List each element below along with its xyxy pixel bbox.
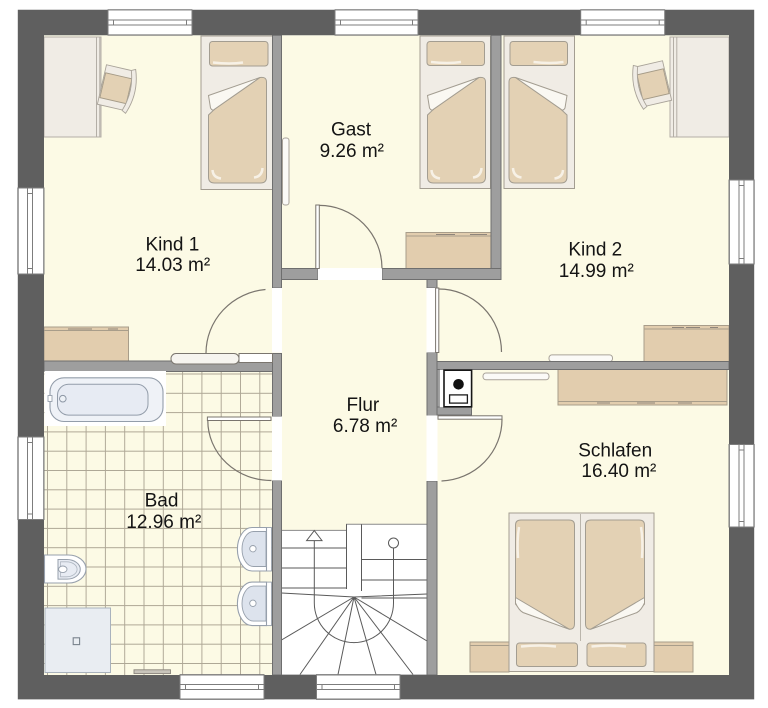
svg-text:Bad: Bad [145,490,179,511]
svg-text:9.26 m²: 9.26 m² [320,141,384,162]
svg-text:Gast: Gast [331,120,372,141]
svg-text:6.78 m²: 6.78 m² [333,416,397,437]
svg-text:Kind 1: Kind 1 [145,235,199,256]
svg-text:14.99 m²: 14.99 m² [559,261,634,282]
svg-text:12.96 m²: 12.96 m² [126,512,201,533]
svg-text:Kind 2: Kind 2 [568,240,622,261]
svg-text:14.03 m²: 14.03 m² [135,255,210,276]
svg-text:Schlafen: Schlafen [578,440,652,461]
svg-text:16.40 m²: 16.40 m² [581,461,656,482]
svg-text:Flur: Flur [347,395,380,416]
